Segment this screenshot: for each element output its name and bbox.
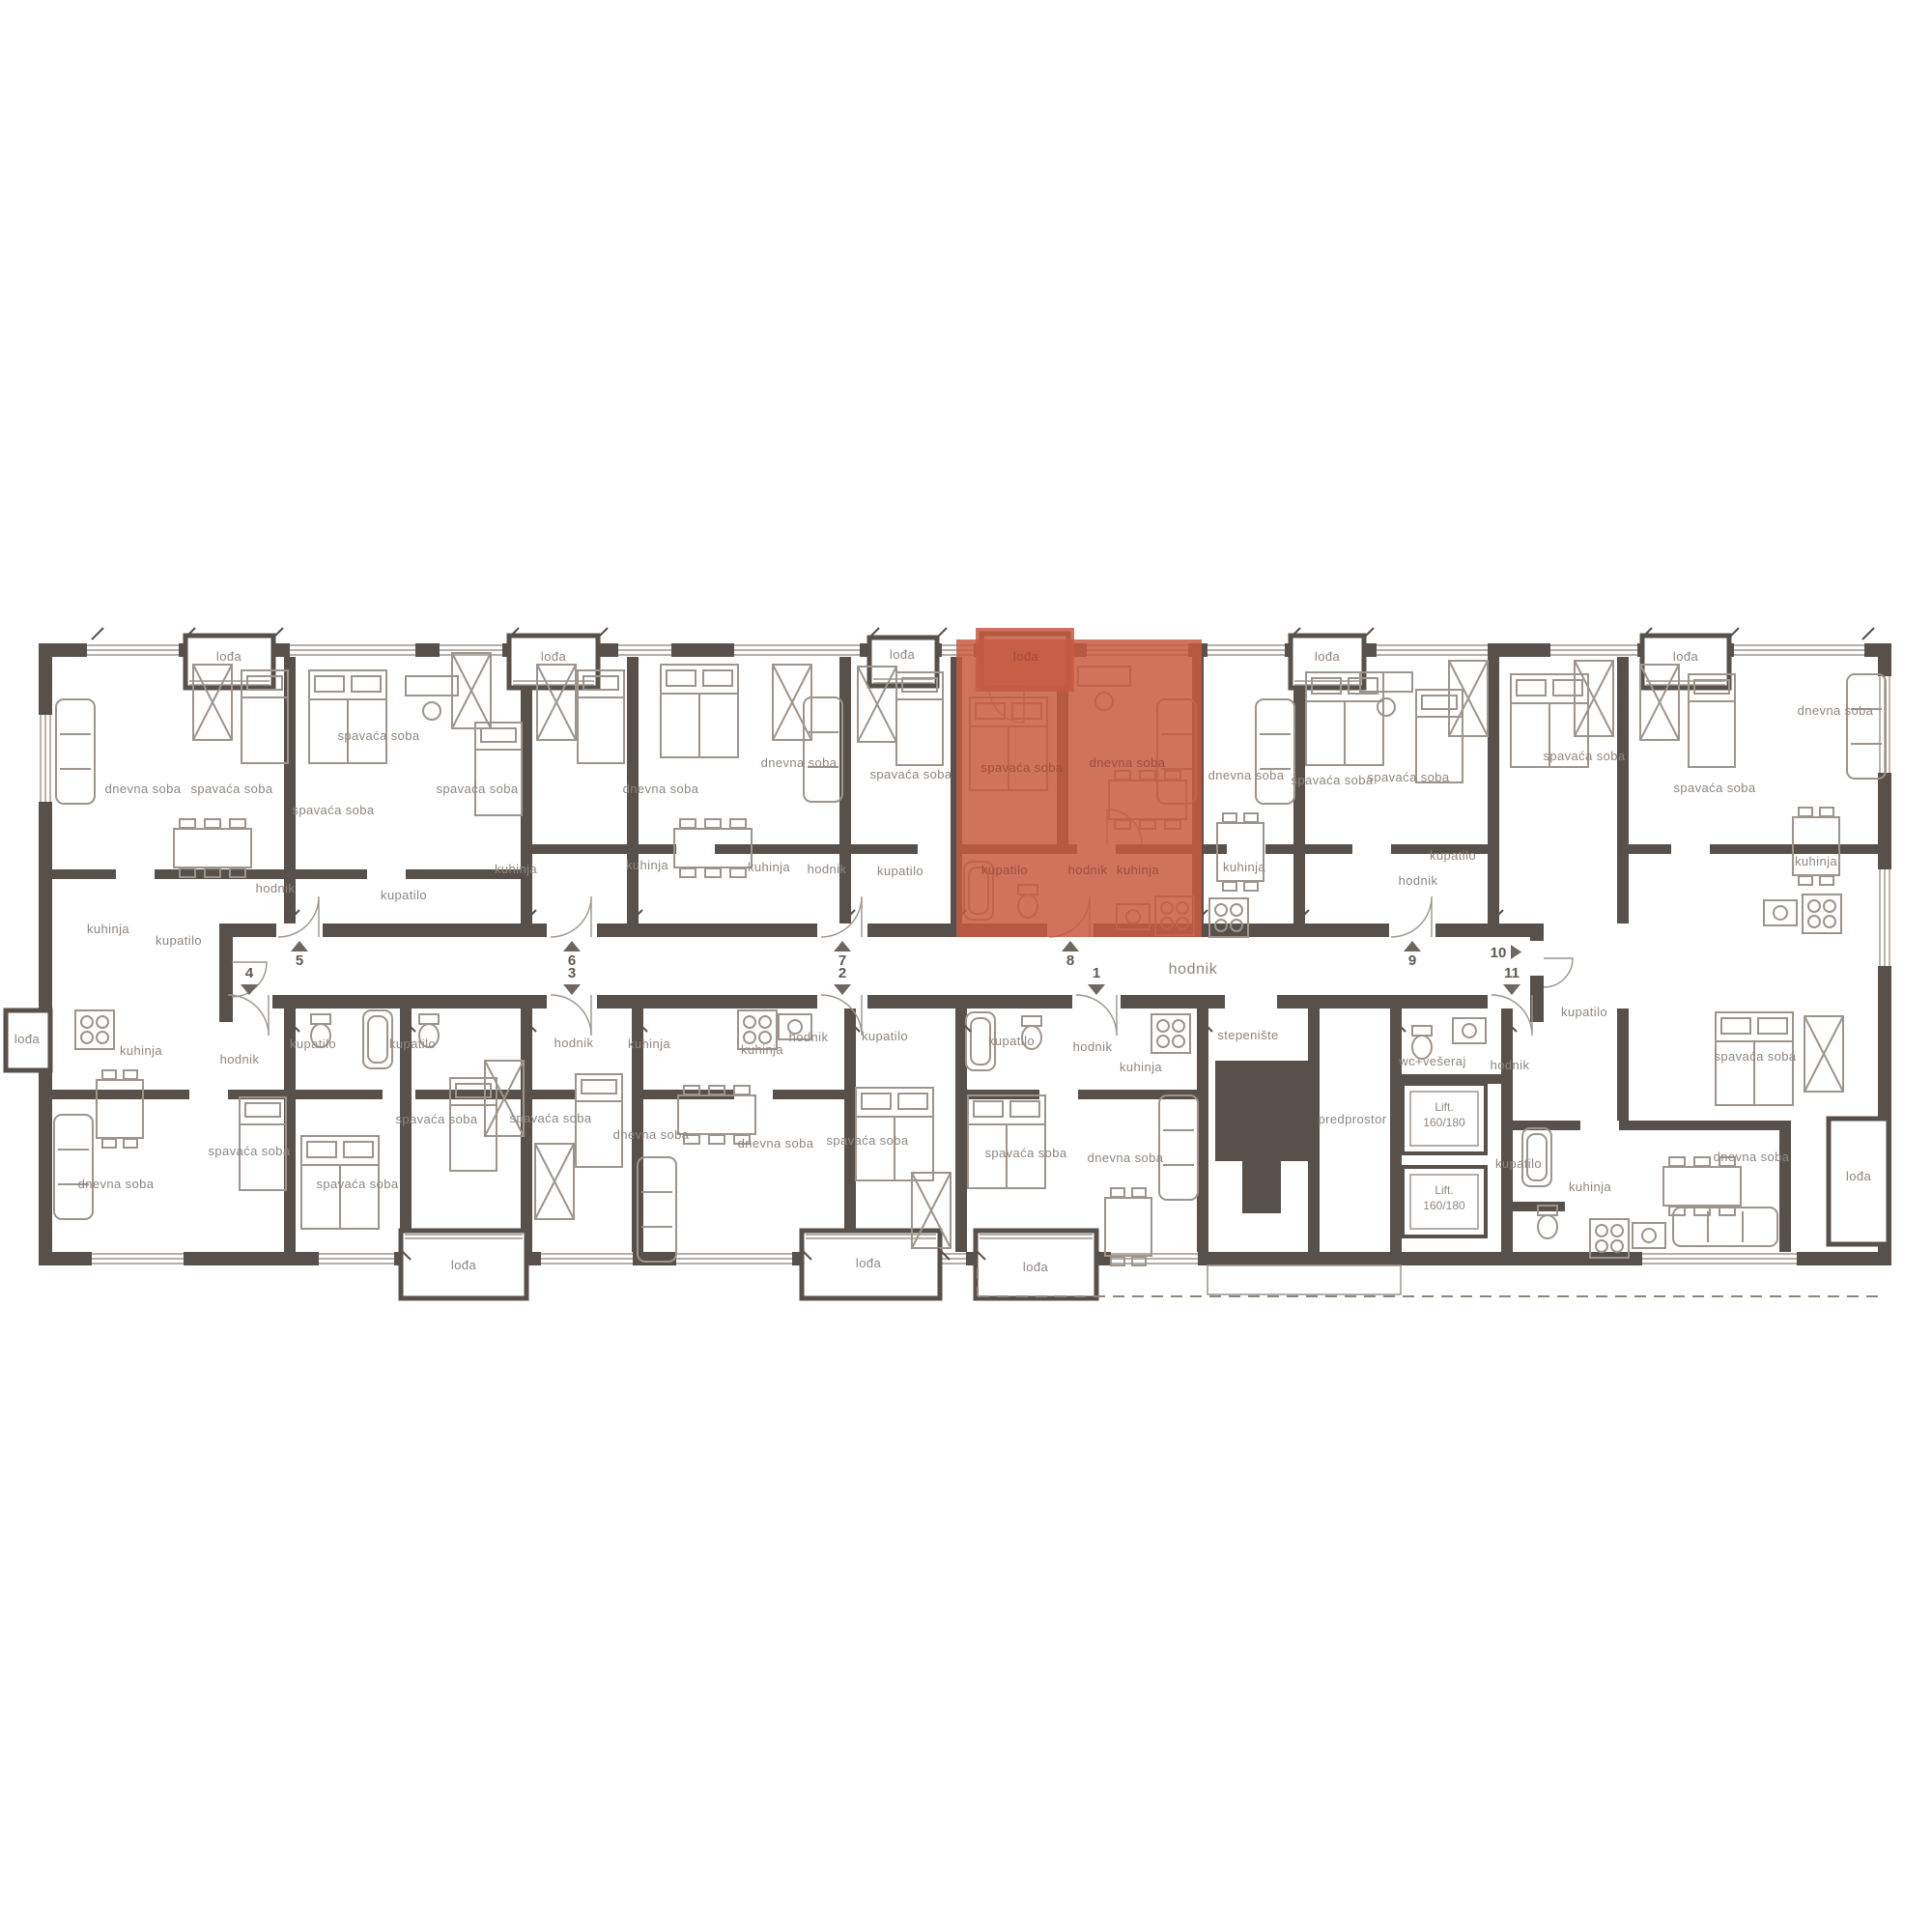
dashed-boundary-line	[978, 1267, 1884, 1296]
room-label: spavaća soba	[826, 1133, 908, 1148]
room-label: spavaća soba	[316, 1177, 398, 1191]
room-label: dnevna soba	[1088, 1151, 1164, 1165]
room-label: kuhinja	[1569, 1179, 1611, 1194]
room-label: dnevna soba	[1714, 1150, 1790, 1164]
unit-markers: 5678910432111	[241, 941, 1521, 995]
svg-text:10: 10	[1491, 945, 1507, 961]
entrance-arrow-icon	[1062, 941, 1079, 952]
room-label: spavaća soba	[509, 1111, 591, 1125]
room-label: stepenište	[1217, 1028, 1278, 1042]
entrance-arrow-icon	[291, 941, 308, 952]
svg-text:2: 2	[838, 965, 846, 981]
unit-entrance-marker[interactable]: 4	[241, 965, 258, 995]
room-label: kuhinja	[748, 860, 790, 874]
room-label: hodnik	[220, 1052, 260, 1066]
room-label: kuhinja	[1120, 1060, 1162, 1074]
room-label: kuhinja	[1223, 860, 1265, 874]
room-label: kupatilo	[1495, 1156, 1542, 1171]
entrance-arrow-icon	[834, 941, 851, 952]
room-label: lođa	[541, 649, 567, 664]
entrance-arrow-icon	[1511, 945, 1521, 959]
room-label: spavaća soba	[1367, 770, 1449, 784]
entrance-arrow-icon	[241, 984, 258, 995]
room-label: spavaća soba	[1714, 1049, 1796, 1064]
lift-label: Lift.	[1435, 1100, 1453, 1114]
unit-entrance-marker[interactable]: 1	[1088, 965, 1105, 995]
room-label: hodnik	[554, 1036, 594, 1050]
svg-text:9: 9	[1408, 952, 1416, 969]
floor-plan: lođalođalođalođalođalođadnevna sobaspava…	[0, 0, 1932, 1932]
room-label: kupatilo	[981, 863, 1028, 877]
room-label: kupatilo	[381, 888, 427, 902]
room-label: hodnik	[1073, 1039, 1113, 1054]
room-label: kuhinja	[87, 922, 129, 936]
room-label: dnevna soba	[761, 755, 838, 770]
highlighted-unit[interactable]	[956, 628, 1202, 937]
corridor-label: hodnik	[1169, 961, 1218, 978]
room-label: spavaća soba	[208, 1144, 290, 1158]
room-label: spavaća soba	[337, 728, 419, 743]
room-label: hodnik	[1399, 873, 1438, 888]
room-label: dnevna soba	[1798, 703, 1874, 718]
room-label: lođa	[890, 647, 916, 662]
room-label: hodnik	[808, 862, 847, 876]
room-label: hodnik	[1068, 863, 1108, 877]
room-label: lođa	[1673, 649, 1699, 664]
unit-entrance-marker[interactable]: 8	[1062, 941, 1079, 969]
room-label: kupatilo	[290, 1037, 336, 1051]
room-label: dnevna soba	[613, 1127, 690, 1142]
room-label: kuhinja	[495, 862, 537, 876]
room-label: spavaća soba	[984, 1146, 1066, 1160]
room-label: wc+vešeraj	[1398, 1054, 1465, 1068]
room-label: predprostor	[1319, 1112, 1387, 1126]
room-label: kuhinja	[1795, 854, 1837, 868]
svg-text:1: 1	[1093, 965, 1100, 981]
unit-entrance-marker[interactable]: 11	[1503, 965, 1520, 995]
room-label: spavaća soba	[980, 760, 1063, 775]
room-label: dnevna soba	[738, 1136, 814, 1151]
entrance-arrow-icon	[563, 984, 581, 995]
room-label: lođa	[856, 1256, 882, 1270]
room-label: spavaća soba	[869, 767, 952, 781]
room-label: hodnik	[789, 1030, 829, 1044]
room-label: lođa	[1846, 1169, 1872, 1183]
unit-entrance-marker[interactable]: 10	[1491, 945, 1521, 961]
room-label: kuhinja	[628, 1037, 670, 1051]
room-label: lođa	[1013, 649, 1039, 664]
room-label: spavaća soba	[436, 781, 518, 796]
room-label: spavaća soba	[1673, 781, 1755, 795]
room-label: lođa	[451, 1258, 477, 1272]
entrance-arrow-icon	[834, 984, 851, 995]
room-label: kuhinja	[120, 1043, 162, 1058]
entrance-arrow-icon	[1404, 941, 1421, 952]
lift-size-label: 160/180	[1423, 1116, 1465, 1129]
room-label: kupatilo	[156, 933, 202, 948]
room-label: dnevna soba	[1208, 768, 1285, 782]
entrance-arrow-icon	[1088, 984, 1105, 995]
room-label: hodnik	[1491, 1058, 1530, 1072]
lift-labels: Lift.160/180Lift.160/180	[1423, 1100, 1465, 1212]
room-label: spavaća soba	[190, 781, 272, 796]
unit-entrance-marker[interactable]: 3	[563, 965, 581, 995]
svg-text:8: 8	[1066, 952, 1074, 969]
unit-entrance-marker[interactable]: 2	[834, 965, 851, 995]
room-label: spavaća soba	[395, 1112, 477, 1126]
entrance-arrow-icon	[1503, 984, 1520, 995]
room-label: lođa	[14, 1032, 41, 1046]
room-label: lođa	[216, 649, 242, 664]
unit-entrance-marker[interactable]: 5	[291, 941, 308, 969]
room-label: kupatilo	[1430, 848, 1476, 863]
svg-text:3: 3	[568, 965, 576, 981]
room-label: kupatilo	[1561, 1005, 1607, 1019]
room-label: dnevna soba	[78, 1177, 155, 1191]
room-label: lođa	[1315, 649, 1341, 664]
room-label: kuhinja	[626, 858, 668, 872]
svg-text:11: 11	[1504, 965, 1520, 981]
room-label: spavaća soba	[1291, 773, 1373, 787]
floor-plan-page: lođalođalođalođalođalođadnevna sobaspava…	[0, 0, 1932, 1932]
room-label: kupatilo	[862, 1029, 908, 1043]
room-label: spavaća soba	[1543, 749, 1625, 763]
lift-label: Lift.	[1435, 1183, 1453, 1197]
door-arcs	[228, 688, 1573, 1036]
entrance-arrow-icon	[563, 941, 581, 952]
room-label: kupatilo	[389, 1037, 436, 1051]
unit-entrance-marker[interactable]: 9	[1404, 941, 1421, 969]
room-label: hodnik	[256, 881, 296, 895]
room-label: spavaća soba	[292, 803, 374, 817]
room-label: kuhinja	[741, 1042, 783, 1057]
lift-size-label: 160/180	[1423, 1199, 1465, 1212]
room-label: kuhinja	[1117, 863, 1159, 877]
room-label: dnevna soba	[1090, 755, 1166, 770]
room-label: lođa	[1023, 1260, 1049, 1274]
room-label: dnevna soba	[623, 781, 699, 796]
svg-text:4: 4	[245, 965, 254, 981]
svg-text:5: 5	[296, 952, 303, 969]
room-label: kupatilo	[877, 864, 923, 878]
room-label: dnevna soba	[105, 781, 182, 796]
room-label: kupatilo	[988, 1034, 1035, 1048]
